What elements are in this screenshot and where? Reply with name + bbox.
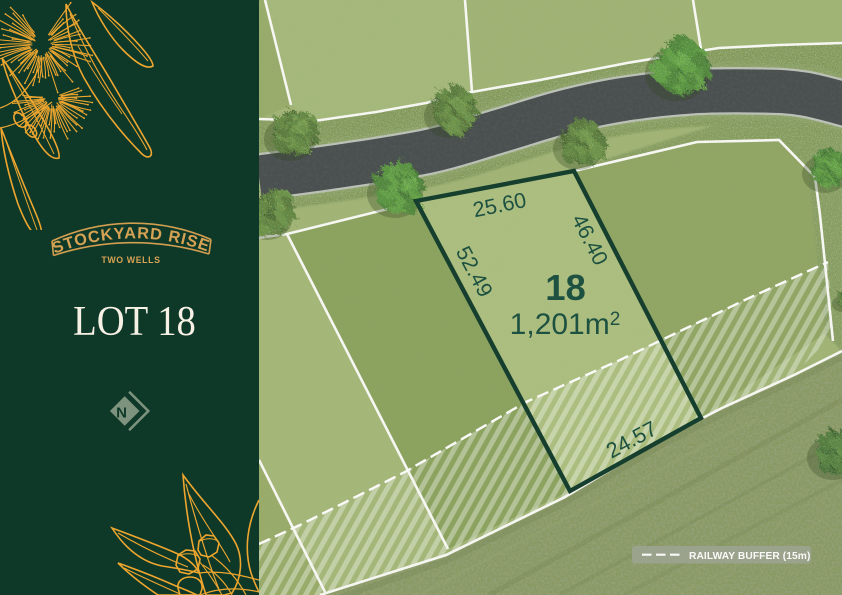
svg-text:TWO WELLS: TWO WELLS [101, 255, 160, 265]
svg-text:N: N [116, 405, 127, 422]
svg-text:STOCKYARD RISE: STOCKYARD RISE [50, 224, 213, 257]
